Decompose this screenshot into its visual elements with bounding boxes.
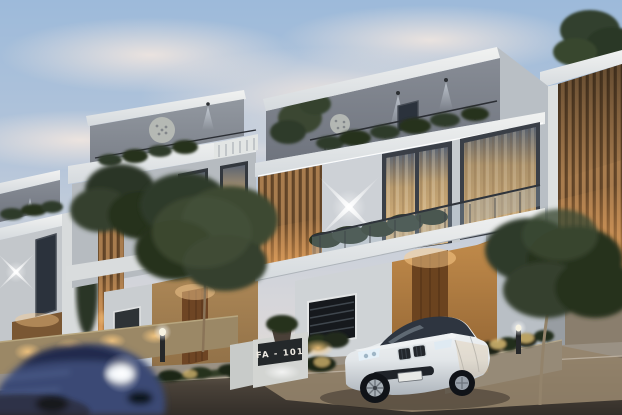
headlight-ring [364,354,368,358]
rear-wheel [449,370,475,396]
disc-ornament [149,117,175,143]
downlight-fixture [396,91,400,95]
disc-ornament [330,114,350,134]
bollard-lamp [516,325,522,332]
villa-dusk-render: FA - 101 [0,0,622,415]
downlight-fixture [206,102,210,106]
headlight-glow [102,353,142,393]
far-left-window [36,234,56,316]
side-mirror [448,334,456,339]
downlight-fixture [444,78,448,82]
slat-panel-shadow [558,64,622,180]
gate-wall [230,341,253,390]
license-plate [398,371,423,382]
bollard-lamp [159,328,166,336]
headlight-ring [372,352,376,356]
garage-glow [15,313,59,327]
front-wheel [360,373,390,403]
plaque-uplight [264,364,300,380]
blue-car-wheel [127,391,153,405]
